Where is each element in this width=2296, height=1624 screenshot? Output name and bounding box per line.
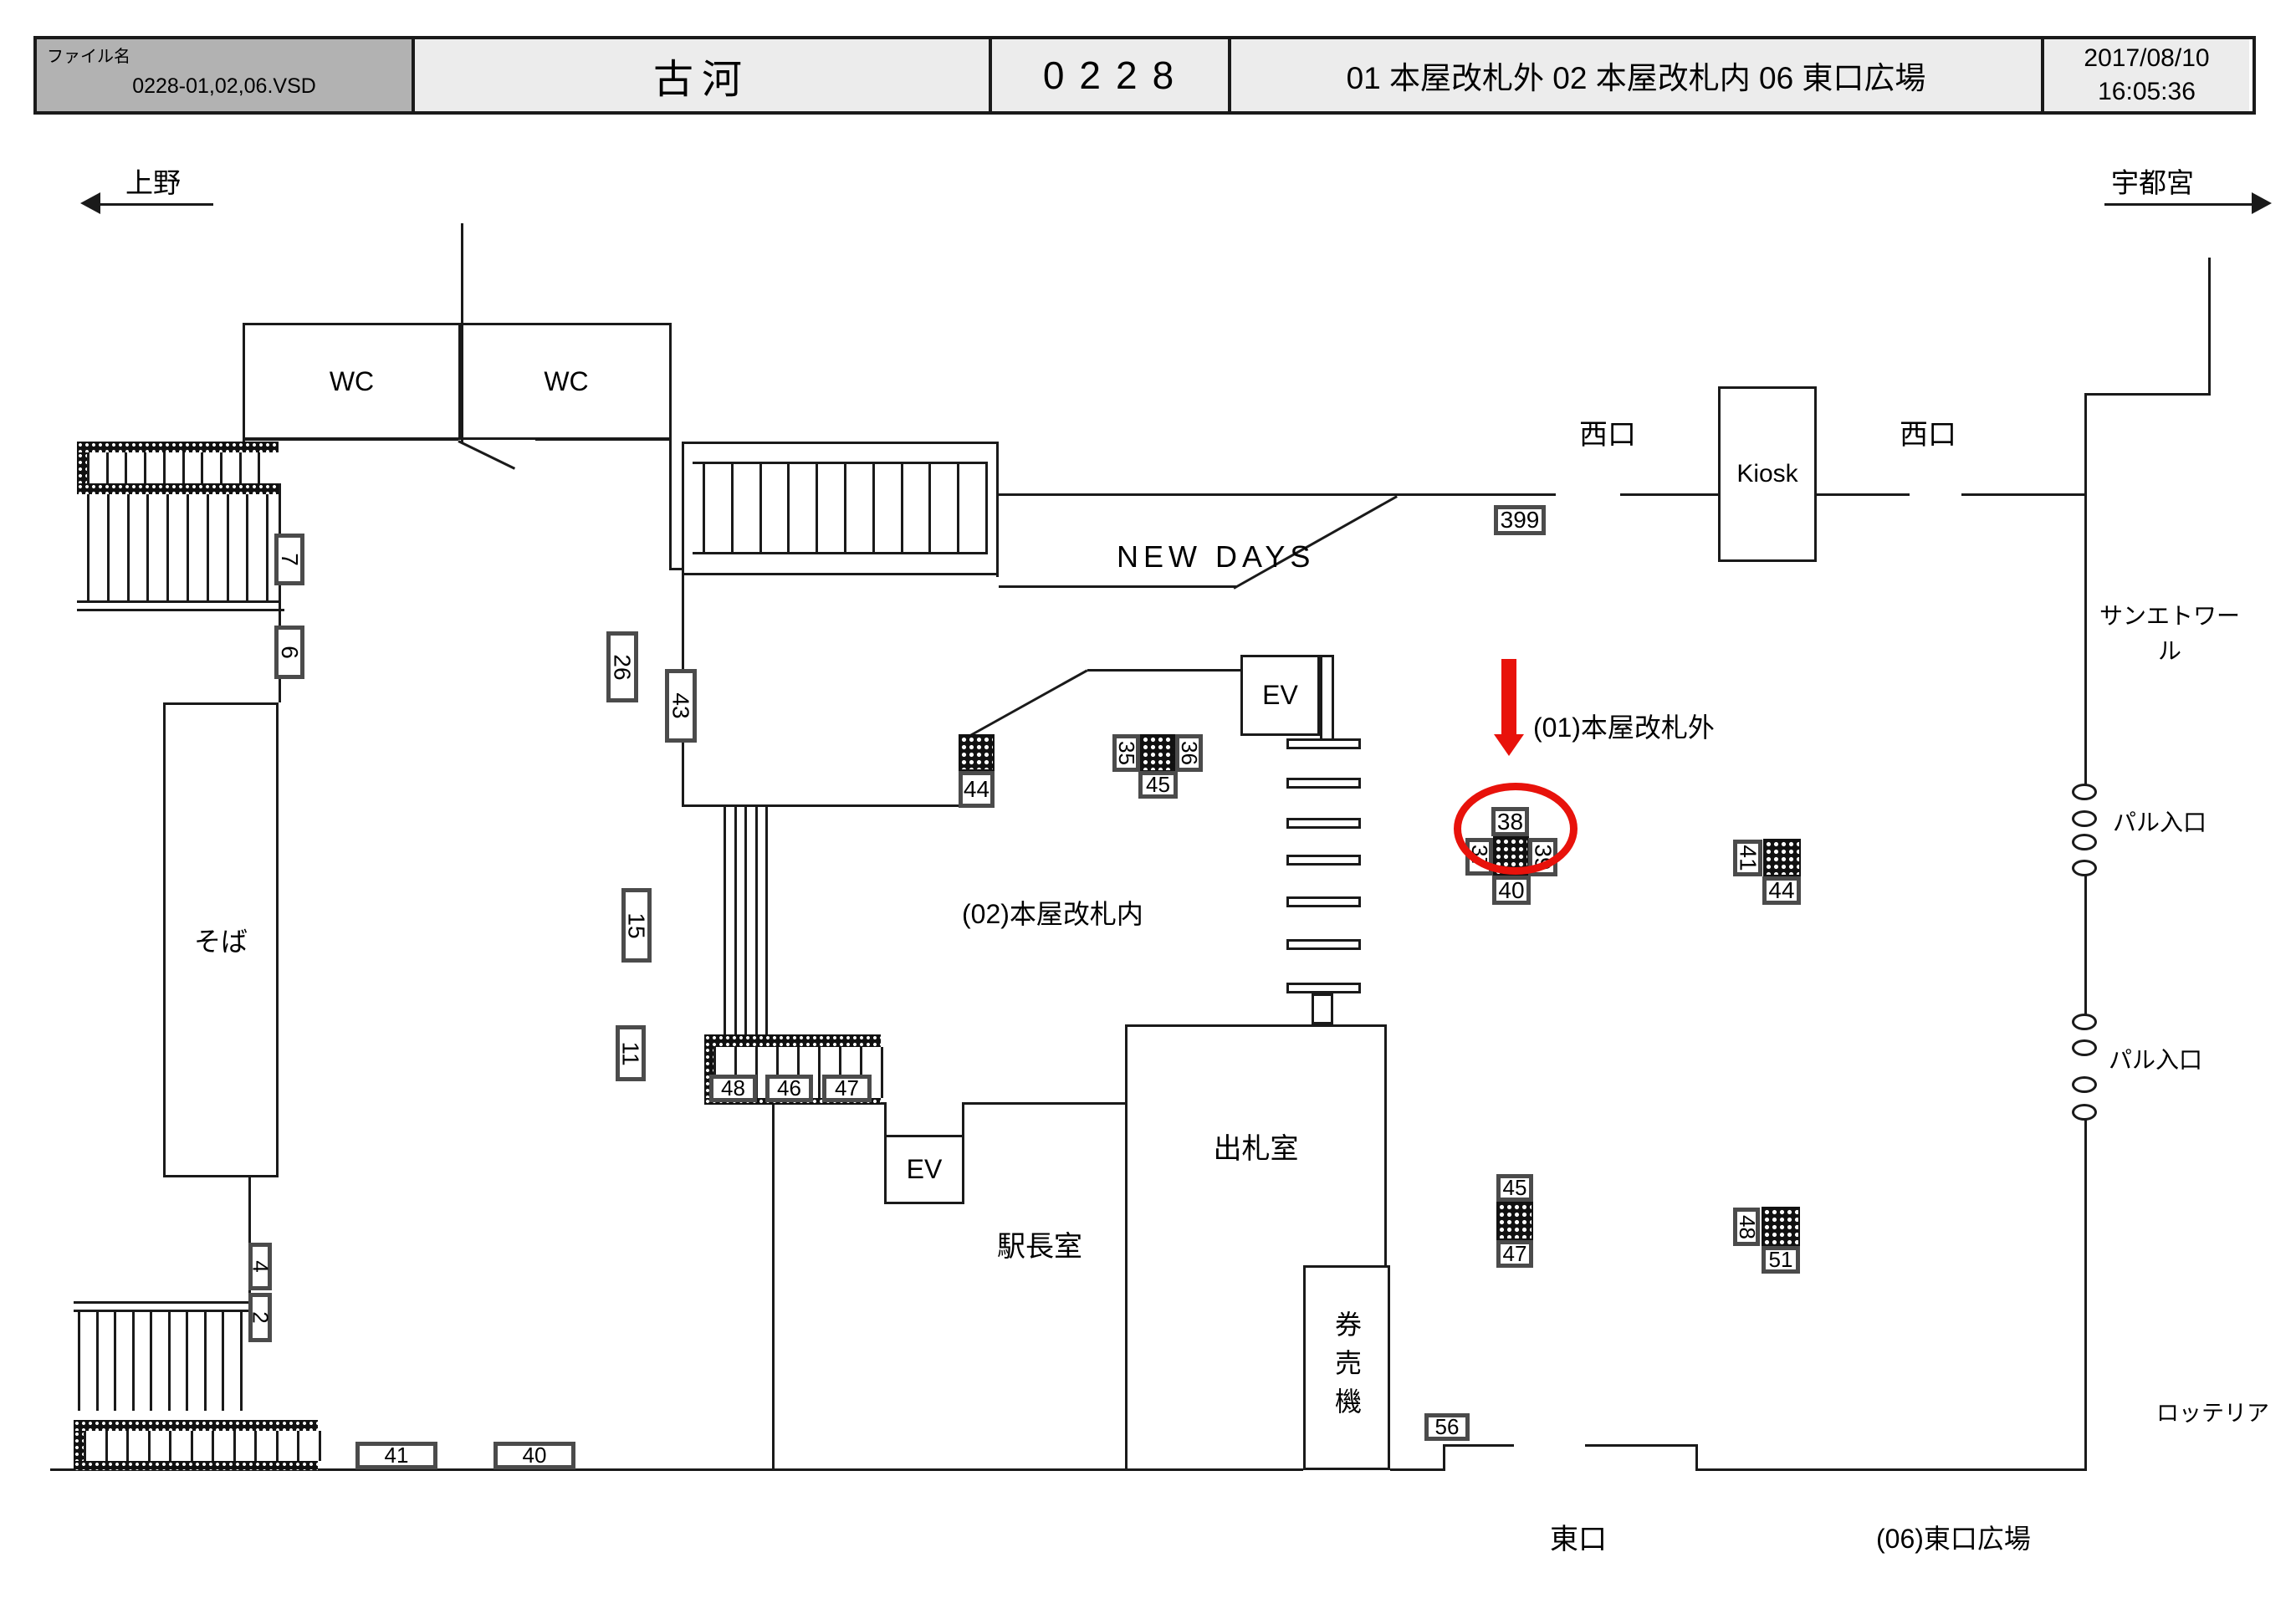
wall-segment: [1443, 1444, 1514, 1447]
stair-tread: [146, 494, 149, 600]
wall-segment: [1620, 493, 1718, 496]
ticket-gate-bar: [1286, 855, 1361, 866]
stair-tread: [297, 1431, 299, 1461]
stair-tread: [201, 452, 203, 483]
room-soba: そば: [163, 702, 279, 1177]
stair-tread: [765, 807, 768, 1034]
ad-position-47: 47: [822, 1075, 872, 1102]
wall-segment: [2084, 876, 2087, 1014]
stair-tread: [150, 1310, 152, 1411]
wall-segment: [1443, 1444, 1445, 1471]
ad-position-48: 48: [709, 1075, 757, 1102]
stair-hatch: [704, 1034, 881, 1047]
stair-tread: [227, 494, 229, 600]
stair-tread: [125, 452, 127, 483]
wall-segment: [999, 493, 1556, 496]
stair-tread: [881, 1047, 883, 1098]
stair-tread: [755, 807, 758, 1034]
ad-position-56: 56: [1424, 1413, 1470, 1441]
stair-tread: [144, 452, 146, 483]
ticket-gate-bar: [1286, 983, 1361, 993]
stair-tread: [724, 807, 726, 1034]
stair-tread: [87, 452, 89, 483]
stair-tread: [148, 1431, 151, 1461]
wall-segment: [2084, 393, 2211, 396]
stair-tread: [759, 464, 762, 552]
stair-tread: [106, 452, 109, 483]
label-east-exit: 東口: [1550, 1516, 1607, 1557]
wall-segment: [682, 573, 999, 575]
wall-segment: [2084, 1120, 2087, 1471]
stair-hatch: [74, 1420, 318, 1431]
wall-segment: [682, 442, 684, 575]
label-area-02: (02)本屋改札内: [962, 893, 1143, 932]
label-new-days: NEW DAYS: [1117, 539, 1315, 575]
stair-tread: [731, 464, 734, 552]
ad-position-40: 40: [1492, 876, 1531, 905]
stair-tread: [239, 452, 242, 483]
stair-tread: [182, 452, 185, 483]
wall-segment: [77, 600, 281, 603]
wall-segment: [772, 1104, 775, 1470]
stair-tread: [212, 1431, 214, 1461]
ad-position-6: 6: [274, 626, 304, 679]
ad-position-40: 40: [493, 1442, 575, 1469]
door-circle: [2072, 1014, 2097, 1030]
door-circle: [2072, 1076, 2097, 1093]
ad-position-11: 11: [616, 1025, 646, 1081]
stair-tread: [319, 1431, 321, 1461]
door-circle: [2072, 1104, 2097, 1121]
stair-tread: [744, 807, 747, 1034]
stair-tread: [168, 1310, 171, 1411]
wall-diagonal: [969, 669, 1087, 736]
wall-segment: [1332, 655, 1334, 738]
wall-segment: [693, 462, 988, 464]
ad-position-51: 51: [1762, 1246, 1800, 1274]
stair-tread: [96, 1310, 99, 1411]
wall-segment: [693, 552, 988, 554]
stair-hatch: [77, 452, 87, 483]
room-wc-left: WC: [243, 323, 461, 440]
label-west-exit-2: 西口: [1900, 411, 1956, 452]
arrow-left-icon: [80, 192, 100, 214]
pillar: [959, 734, 995, 771]
ad-position-15: 15: [621, 888, 652, 963]
direction-utsunomiya: 宇都宮: [2111, 161, 2194, 201]
stair-tread: [703, 464, 705, 552]
ad-position-44: 44: [959, 771, 995, 808]
ad-position-399: 399: [1494, 505, 1546, 535]
stair-tread: [254, 1431, 257, 1461]
wall-segment: [964, 1102, 1128, 1105]
stair-tread: [220, 452, 222, 483]
ticket-gate-bar: [1286, 778, 1361, 789]
highlight-circle-38: [1454, 783, 1578, 875]
stair-tread: [163, 452, 166, 483]
stair-tread: [872, 464, 875, 552]
highlight-arrow-shaft: [1501, 659, 1516, 736]
stair-tread: [127, 494, 130, 600]
ad-position-26: 26: [606, 631, 638, 702]
ad-position-45: 45: [1138, 771, 1178, 799]
stair-hatch: [77, 442, 279, 452]
stair-tread: [901, 464, 903, 552]
ad-position-43: 43: [665, 669, 697, 743]
ad-position-36: 36: [1175, 734, 1203, 772]
room-ticket-office: 出札室: [1125, 1024, 1387, 1265]
stair-tread: [207, 494, 209, 600]
room-wc-right: WC: [461, 323, 672, 440]
ad-position-46: 46: [765, 1075, 813, 1102]
pillar: [1762, 1207, 1800, 1246]
wall-segment: [884, 1102, 887, 1137]
stair-tread: [787, 464, 790, 552]
wall-segment: [1961, 493, 2084, 496]
floor-plan: WCWCそばKioskEVEV出札室券売機NEW DAYS西口西口(01)本屋改…: [0, 0, 2296, 1624]
wall-segment: [2208, 258, 2211, 396]
stair-tread: [126, 1431, 129, 1461]
wall-segment: [996, 442, 999, 577]
stair-tread: [240, 1310, 243, 1411]
stair-tread: [107, 494, 110, 600]
door-circle: [2072, 834, 2097, 850]
ad-position-47: 47: [1496, 1240, 1533, 1268]
station-map-page: ファイル名 0228-01,02,06.VSD 古河 0228 01 本屋改札外…: [0, 0, 2296, 1624]
room-ticket-machines: 券売機: [1303, 1265, 1390, 1470]
stair-tread: [169, 1431, 171, 1461]
stair-tread: [204, 1310, 207, 1411]
label-area-01: (01)本屋改札外: [1533, 707, 1715, 745]
stair-tread: [266, 494, 268, 600]
ad-position-45: 45: [1496, 1174, 1533, 1202]
ad-position-4: 4: [248, 1243, 272, 1290]
pillar: [1763, 839, 1801, 876]
stair-tread: [818, 1047, 821, 1098]
ticket-gate-stem: [1312, 993, 1333, 1024]
stair-tread: [166, 494, 169, 600]
stair-tread: [233, 1431, 236, 1461]
wall-segment: [682, 442, 999, 444]
pillar: [1496, 1202, 1533, 1240]
room-ev-lower: EV: [884, 1135, 964, 1204]
stair-hatch: [74, 1461, 318, 1470]
ticket-gate-bar: [1286, 939, 1361, 950]
door-circle: [2072, 1039, 2097, 1056]
wall-segment: [1087, 669, 1242, 672]
label-station-master: 駅長室: [997, 1223, 1082, 1264]
stair-tread: [222, 1310, 224, 1411]
wall-segment: [2084, 393, 2087, 784]
label-area-06-east-plaza: (06)東口広場: [1876, 1518, 2031, 1556]
door-circle: [2072, 784, 2097, 800]
door-circle: [2072, 810, 2097, 827]
wall-segment: [999, 585, 1236, 588]
stair-tread: [187, 494, 189, 600]
ticket-gate-bar: [1286, 896, 1361, 907]
highlight-arrow-icon: [1494, 734, 1524, 756]
stair-tread: [87, 494, 89, 600]
stair-tread: [734, 807, 737, 1034]
wall-segment: [77, 609, 284, 611]
room-kiosk: Kiosk: [1718, 386, 1817, 562]
stair-tread: [132, 1310, 135, 1411]
stair-tread: [928, 464, 931, 552]
stair-tread: [186, 1310, 188, 1411]
stair-tread: [276, 1431, 279, 1461]
stair-tread: [191, 1431, 193, 1461]
label-lotteria: ロッテリア: [2156, 1395, 2269, 1427]
wall-segment: [1585, 1444, 1698, 1447]
label-pal-entrance-2: パル入口: [2109, 1042, 2202, 1075]
wall-segment: [1320, 655, 1322, 738]
stair-tread: [258, 452, 260, 483]
room-ev-upper: EV: [1240, 655, 1320, 736]
label-pal-entrance-1: パル入口: [2113, 804, 2207, 838]
arrow-right-icon: [2252, 192, 2272, 214]
label-west-exit-1: 西口: [1579, 411, 1636, 452]
stair-tread: [985, 464, 988, 552]
wall-segment: [1695, 1468, 2084, 1471]
stair-tread: [84, 1431, 86, 1461]
stair-tread: [957, 464, 959, 552]
stair-tread: [114, 1310, 116, 1411]
door-circle: [2072, 860, 2097, 876]
wall-diagonal: [458, 440, 515, 470]
ad-position-44: 44: [1762, 876, 1801, 905]
ad-position-41: 41: [1733, 840, 1762, 876]
ticket-gate-bar: [1286, 738, 1361, 749]
direction-ueno: 上野: [125, 161, 181, 201]
ad-position-2: 2: [248, 1293, 272, 1342]
wall-segment: [461, 223, 463, 323]
ad-position-35: 35: [1112, 734, 1140, 772]
stair-tread: [246, 494, 248, 600]
ad-position-41: 41: [355, 1442, 437, 1469]
stair-hatch: [74, 1431, 84, 1461]
direction-utsunomiya-line: [2104, 203, 2253, 206]
direction-ueno-line: [94, 203, 213, 206]
stair-tread: [844, 464, 846, 552]
stair-hatch: [77, 483, 279, 494]
stair-tread: [816, 464, 818, 552]
wall-segment: [1695, 1444, 1698, 1471]
wall-segment: [962, 1102, 964, 1137]
ticket-gate-bar: [1286, 818, 1361, 829]
stair-tread: [105, 1431, 108, 1461]
stair-tread: [78, 1310, 80, 1411]
wall-segment: [74, 1301, 248, 1304]
wall-segment: [1390, 1468, 1445, 1471]
wall-segment: [1817, 493, 1910, 496]
ad-position-48: 48: [1733, 1208, 1760, 1246]
wall-segment: [1320, 655, 1332, 657]
pillar: [1140, 734, 1175, 772]
label-san-etoile: サンエトワール: [2094, 599, 2245, 669]
ad-position-7: 7: [274, 534, 304, 585]
